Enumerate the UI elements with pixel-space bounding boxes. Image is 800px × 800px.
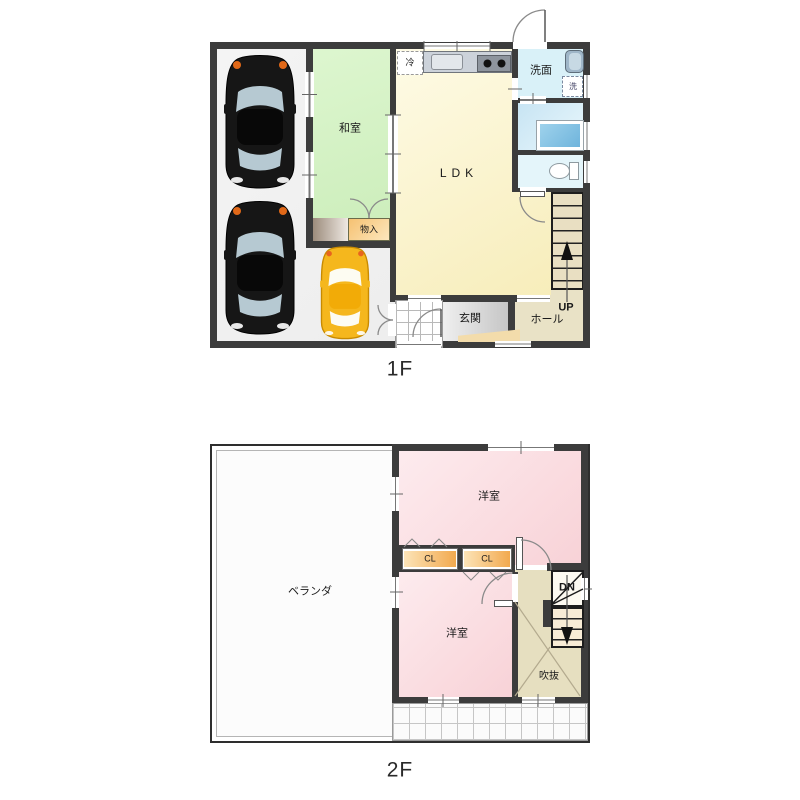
label-senmen: 洗面	[530, 66, 552, 77]
sliding-door	[388, 115, 398, 193]
stairs-up-1f	[551, 192, 584, 290]
window	[488, 444, 554, 451]
label-yoshitsu-bottom: 洋室	[446, 629, 468, 640]
window	[584, 75, 590, 98]
toilet-tank	[569, 162, 579, 180]
bath-sliding-door	[520, 96, 546, 104]
window	[522, 697, 555, 703]
label-up: UP	[558, 303, 573, 314]
porch-threshold	[397, 341, 441, 348]
window	[408, 295, 441, 302]
door-leaf-yoshitsu-top	[516, 537, 523, 570]
label-veranda: ベランダ	[288, 587, 332, 598]
label-dn: DN	[559, 583, 575, 594]
wall	[392, 697, 588, 703]
floor-plan-page: 和室 LDK 物入 冷 洗面 洗 玄関 ホール UP 1F 洋室 洋室 CL C…	[0, 0, 800, 800]
wall	[543, 600, 551, 627]
toilet-door-leaf	[520, 191, 545, 197]
car-black-1	[224, 54, 296, 190]
hall-threshold	[517, 295, 550, 302]
window	[305, 152, 314, 198]
label-fukinuke: 吹抜	[539, 672, 559, 682]
window	[584, 161, 590, 183]
genkan-threshold	[495, 341, 531, 347]
stairs-dn-2f	[551, 607, 584, 648]
door-gap-yoshitsu-bottom	[512, 574, 518, 602]
garage-door-gap	[388, 304, 396, 336]
label-yoshitsu-top: 洋室	[478, 492, 500, 503]
window	[305, 72, 314, 117]
label-monoire: 物入	[360, 226, 378, 235]
wall	[518, 150, 583, 155]
floor1-title: 1F	[387, 359, 414, 380]
door-leaf-yoshitsu-bottom	[494, 600, 513, 607]
senmen-door-gap	[512, 78, 518, 100]
vanity-sink-basin	[569, 53, 581, 70]
floor2-title: 2F	[387, 760, 414, 781]
washitsu-wood-strip	[313, 218, 348, 241]
wall	[512, 49, 518, 192]
car-yellow	[314, 246, 376, 340]
wall	[210, 42, 217, 348]
window	[428, 697, 459, 703]
window	[584, 122, 590, 150]
window	[392, 477, 399, 511]
label-cl-2: CL	[481, 555, 493, 564]
roof-grid-area	[392, 703, 588, 741]
car-black-2	[224, 200, 296, 336]
label-hall: ホール	[531, 315, 564, 326]
back-door-gap	[513, 42, 547, 49]
label-ldk: LDK	[440, 167, 478, 179]
window	[581, 578, 588, 600]
kitchen-stove	[477, 55, 511, 72]
toilet-icon	[549, 163, 570, 179]
window	[424, 43, 490, 49]
label-washer: 洗	[569, 83, 577, 91]
label-genkan: 玄関	[459, 314, 481, 325]
kitchen-sink	[431, 54, 463, 70]
bathtub-icon	[537, 121, 583, 150]
label-cl-1: CL	[424, 555, 436, 564]
label-fridge: 冷	[405, 59, 414, 68]
label-washitsu: 和室	[339, 124, 361, 135]
window	[392, 577, 399, 608]
